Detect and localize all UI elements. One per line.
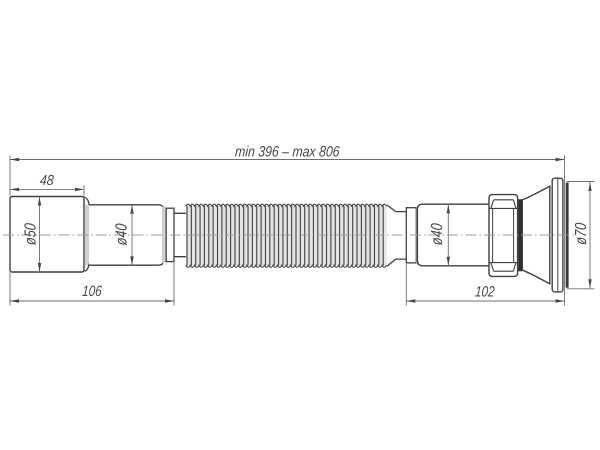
svg-text:ø70: ø70 [573,222,591,245]
svg-text:106: 106 [82,283,103,300]
svg-text:ø40: ø40 [113,223,131,246]
svg-text:102: 102 [475,283,496,300]
svg-text:48: 48 [39,172,54,188]
svg-text:min 396 – max 806: min 396 – max 806 [235,143,341,159]
svg-text:ø50: ø50 [22,223,40,246]
svg-text:ø40: ø40 [429,223,447,246]
